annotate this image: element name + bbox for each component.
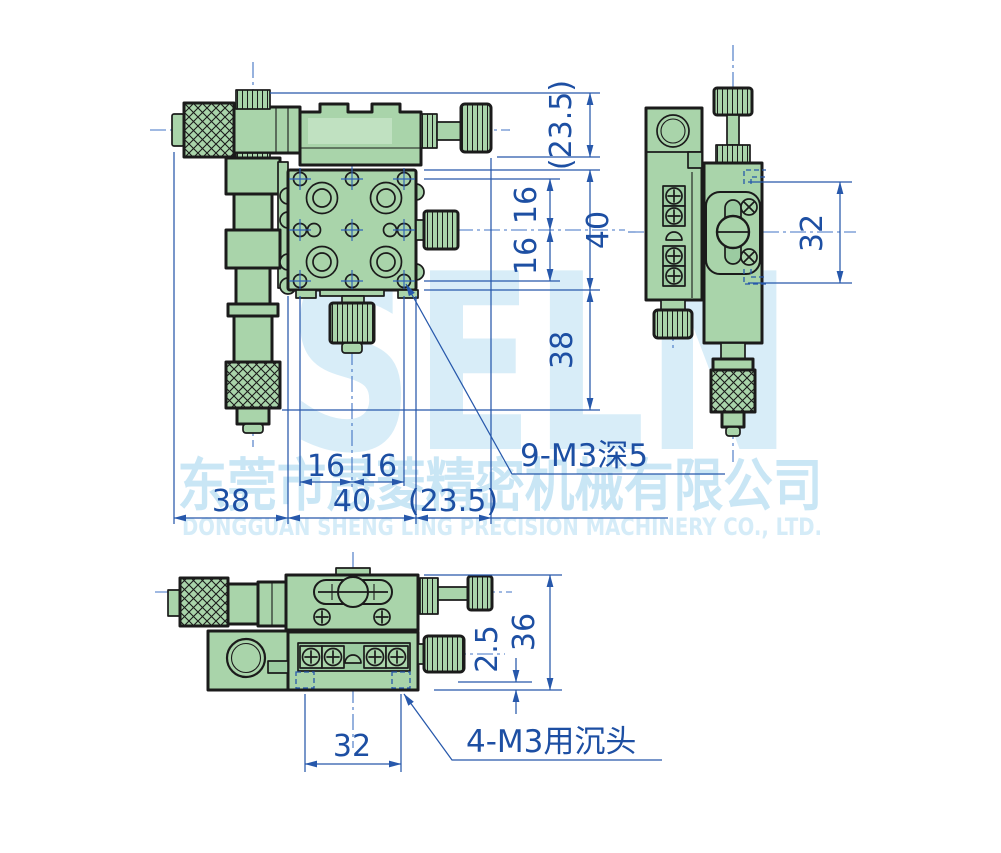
dim-table-width: 40 — [333, 484, 371, 519]
bottom-lock-knob — [424, 636, 464, 672]
dim-top-offset: (23.5) — [544, 80, 579, 170]
dim-hole-pitch-bottom-left: 16 — [307, 449, 345, 484]
drawing-canvas: SELN 东莞市晟菱精密机械有限公司 DONGGUAN SHENG LING P… — [0, 0, 1001, 853]
dim-hole-pitch-bottom-right: 16 — [359, 449, 397, 484]
dim-body-height: 32 — [795, 214, 830, 252]
dim-table-height: 40 — [581, 211, 616, 249]
y-axis-micrometer — [226, 158, 288, 433]
x-axis-micrometer — [172, 103, 300, 157]
bottom-upper-block — [286, 568, 492, 630]
dim-total-height: 36 — [507, 613, 542, 651]
stage-table — [280, 168, 424, 294]
stage-upper-body — [300, 104, 491, 165]
side-main-body — [704, 88, 766, 343]
callout-4-m3: 4-M3用沉头 — [404, 694, 662, 760]
bottom-lower-body — [208, 631, 464, 690]
watermark-company-en: DONGGUAN SHENG LING PRECISION MACHINERY … — [182, 513, 822, 541]
dim-step: 2.5 — [470, 625, 505, 673]
dim-right-offset: (23.5) — [408, 484, 498, 519]
dim-base-height: 38 — [545, 331, 580, 369]
side-lock-knob — [654, 310, 692, 338]
dim-hole-pitch-right-top: 16 — [509, 186, 544, 224]
bottom-view: 36 2.5 32 4-M3用沉头 — [155, 552, 662, 772]
watermark-company-cn: 东莞市晟菱精密机械有限公司 — [178, 453, 823, 519]
dim-hole-pitch-right-bottom: 16 — [509, 237, 544, 275]
gib-screws — [663, 186, 685, 286]
callout-9-m3-label: 9-M3深5 — [520, 438, 648, 474]
dim-left-offset: 38 — [212, 484, 250, 519]
callout-4-m3-label: 4-M3用沉头 — [466, 724, 636, 760]
bottom-x-micrometer — [168, 578, 286, 626]
dim-hole-spacing: 32 — [333, 729, 371, 764]
